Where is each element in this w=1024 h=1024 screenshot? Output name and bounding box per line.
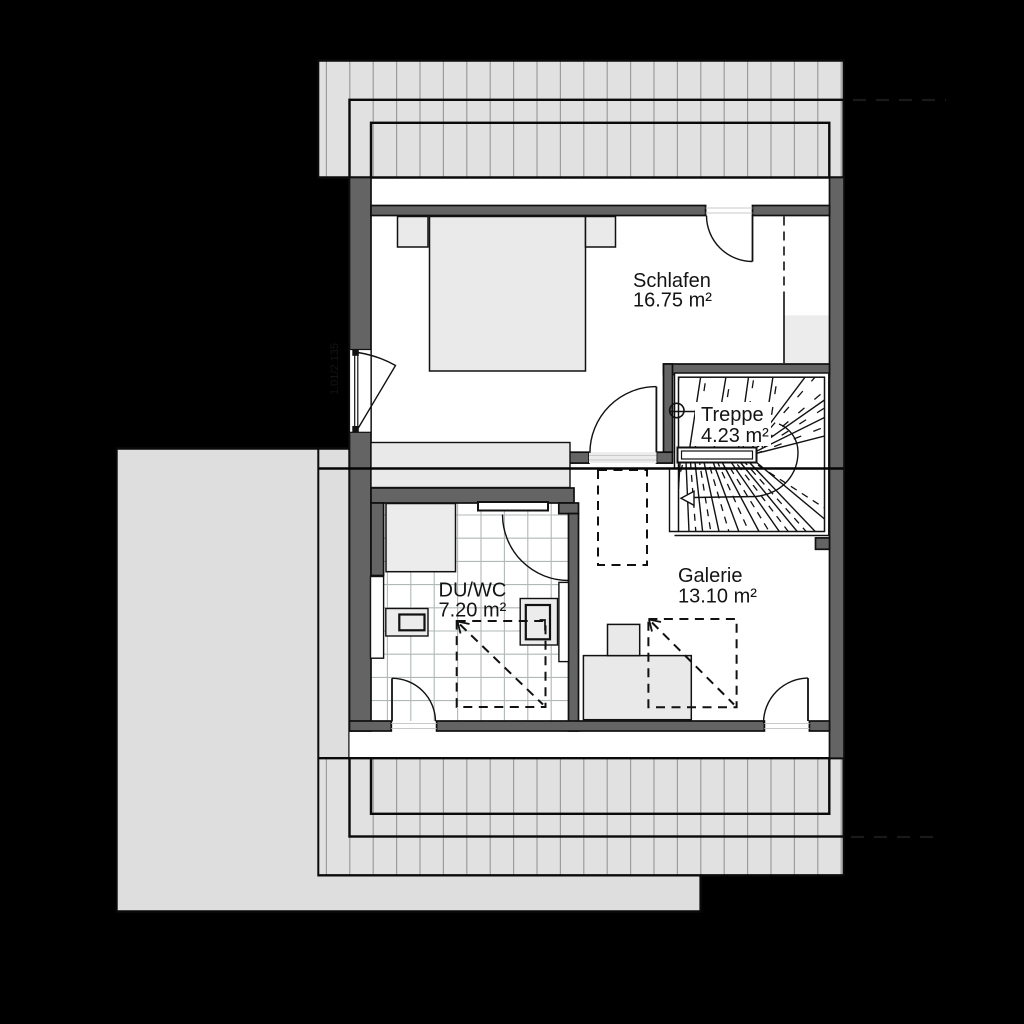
svg-text:DU/WC: DU/WC bbox=[439, 579, 507, 601]
svg-text:Galerie: Galerie bbox=[678, 565, 742, 587]
svg-text:1.01/2.135: 1.01/2.135 bbox=[329, 343, 341, 395]
svg-text:16.75 m²: 16.75 m² bbox=[633, 290, 712, 312]
svg-text:Treppe: Treppe bbox=[701, 404, 764, 426]
svg-text:13.10 m²: 13.10 m² bbox=[678, 586, 757, 608]
svg-text:7.20 m²: 7.20 m² bbox=[439, 600, 507, 622]
svg-text:4.23 m²: 4.23 m² bbox=[701, 425, 769, 447]
